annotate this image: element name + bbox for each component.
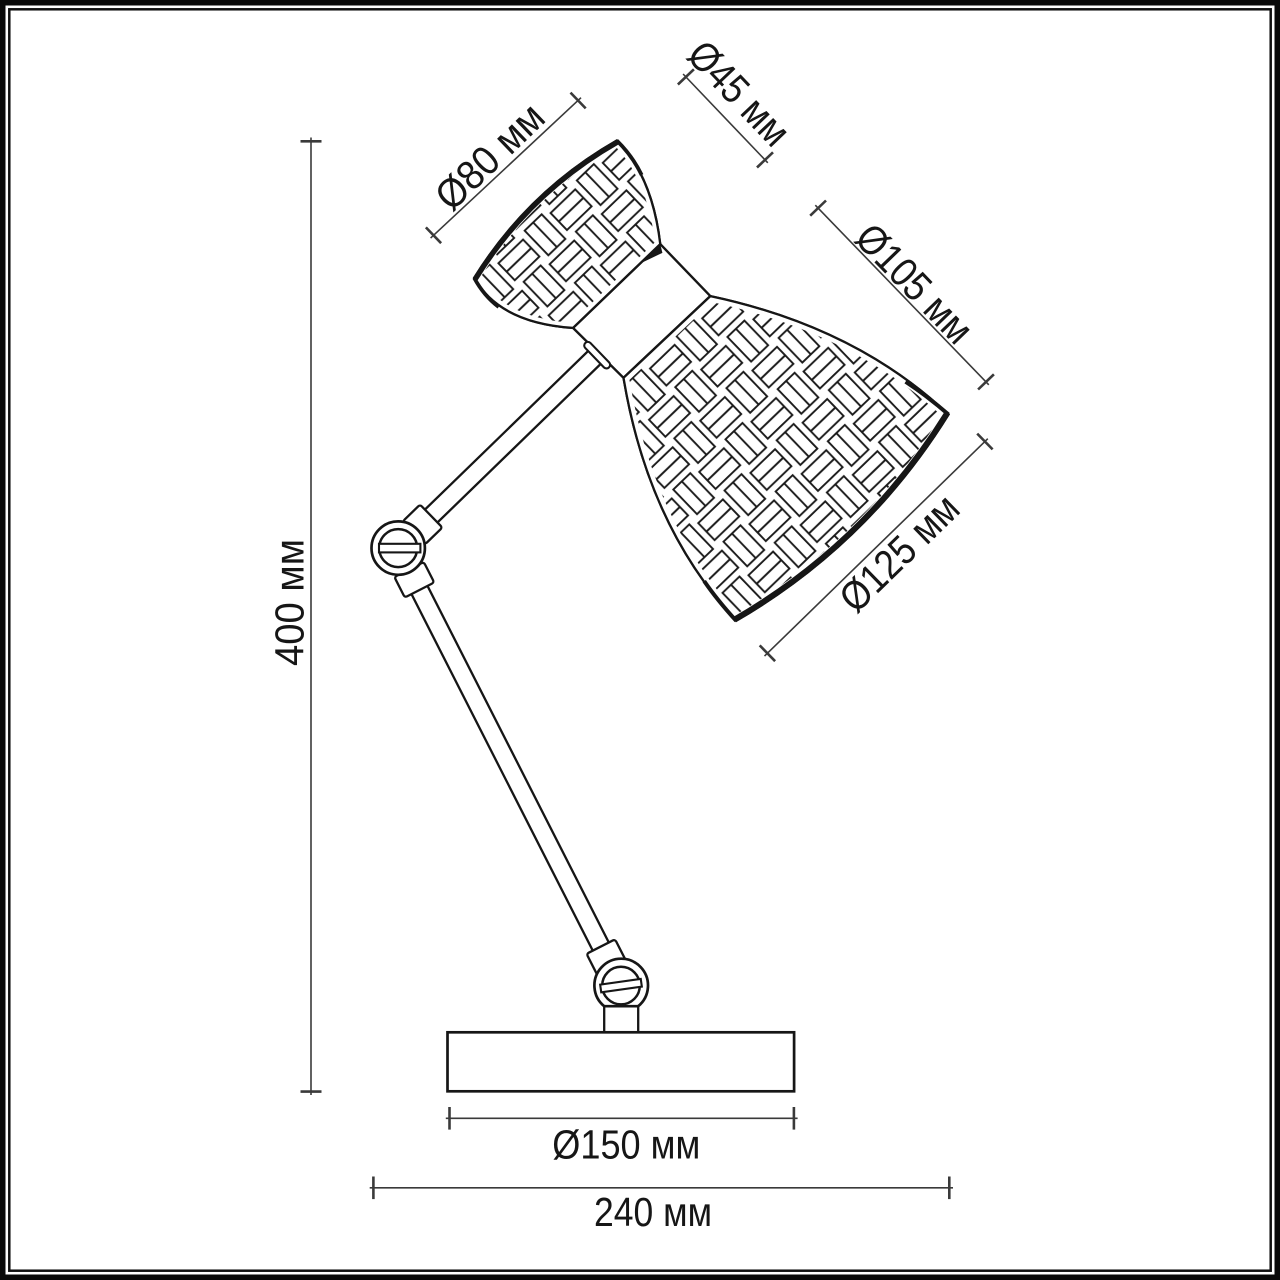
- svg-text:240 мм: 240 мм: [594, 1189, 712, 1235]
- svg-text:Ø150 мм: Ø150 мм: [552, 1122, 700, 1168]
- svg-text:400 мм: 400 мм: [267, 539, 313, 666]
